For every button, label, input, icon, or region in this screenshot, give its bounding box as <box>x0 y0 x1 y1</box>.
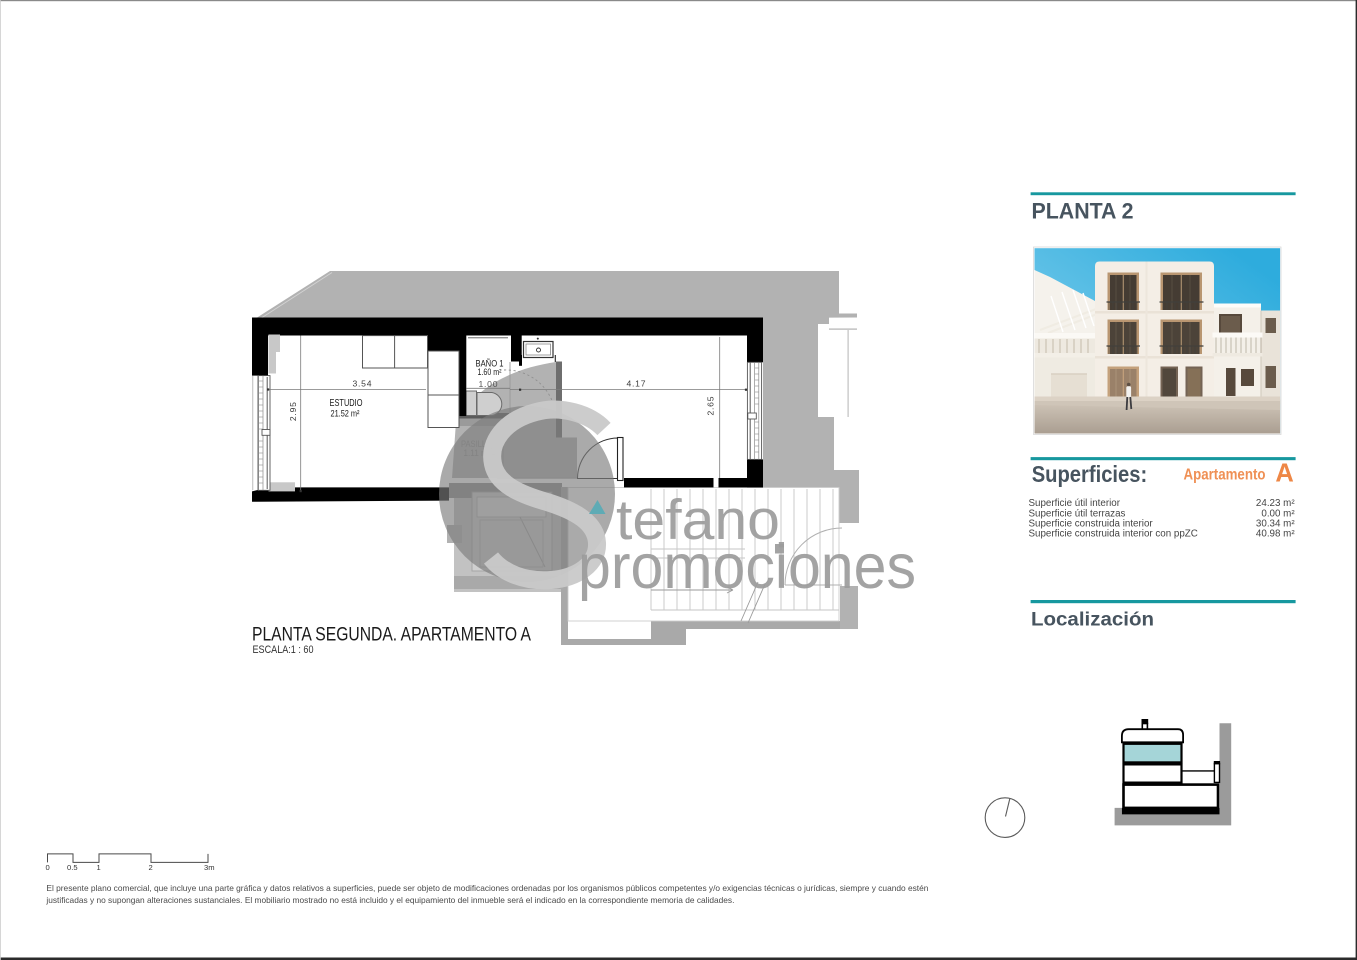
svg-text:40.98 m²: 40.98 m² <box>1256 529 1295 540</box>
svg-text:El presente plano comercial, q: El presente plano comercial, que incluye… <box>46 884 928 893</box>
svg-text:A: A <box>1275 460 1293 488</box>
svg-text:1.60 m²: 1.60 m² <box>478 367 502 377</box>
svg-text:2.95: 2.95 <box>288 402 298 421</box>
svg-text:ESCALA:1 : 60: ESCALA:1 : 60 <box>253 644 314 656</box>
svg-text:2.65: 2.65 <box>706 396 716 415</box>
svg-text:ESTUDIO: ESTUDIO <box>330 398 363 409</box>
svg-text:justificadas y no supongan alt: justificadas y no supongan alteraciones … <box>45 896 734 905</box>
svg-text:0: 0 <box>46 863 50 872</box>
svg-text:2: 2 <box>149 863 153 872</box>
svg-text:Superficies:: Superficies: <box>1032 461 1148 487</box>
svg-text:0.5: 0.5 <box>67 863 78 872</box>
svg-text:3m: 3m <box>204 863 215 872</box>
svg-text:3.54: 3.54 <box>353 379 372 389</box>
svg-text:4.17: 4.17 <box>627 378 646 388</box>
svg-text:PLANTA 2: PLANTA 2 <box>1032 199 1134 224</box>
svg-text:Superficie construida interior: Superficie construida interior con ppZC <box>1029 529 1198 540</box>
svg-text:1.00: 1.00 <box>479 379 498 389</box>
svg-text:promociones: promociones <box>578 532 916 602</box>
svg-text:Localización: Localización <box>1031 608 1154 630</box>
svg-text:Apartamento: Apartamento <box>1184 467 1266 484</box>
svg-text:1: 1 <box>97 863 101 872</box>
svg-text:PLANTA SEGUNDA. APARTAMENTO A: PLANTA SEGUNDA. APARTAMENTO A <box>252 624 532 646</box>
svg-text:21.52 m²: 21.52 m² <box>331 409 360 419</box>
